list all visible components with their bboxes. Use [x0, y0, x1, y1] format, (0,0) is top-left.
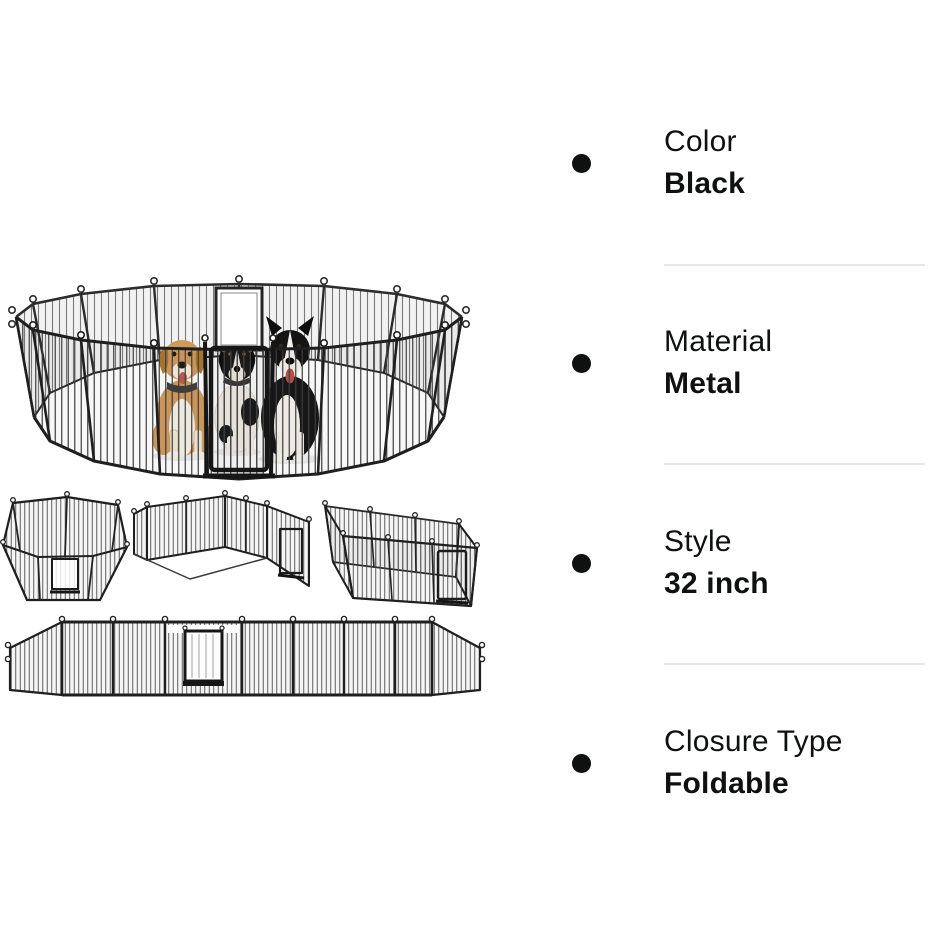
spec-row-closure-type: Closure Type Foldable	[572, 721, 843, 805]
spec-label-style: Style	[664, 521, 769, 563]
hexagon-pen	[1, 492, 130, 600]
pen-back-gate	[216, 288, 262, 350]
bullet-icon	[572, 154, 591, 173]
pen-front-gate	[202, 335, 276, 476]
spec-label-closure-type: Closure Type	[664, 721, 843, 763]
bullet-icon	[572, 354, 591, 373]
spec-label-material: Material	[664, 321, 772, 363]
product-image-main	[0, 240, 478, 485]
playpen-flat-illustration	[0, 613, 490, 705]
divider	[664, 264, 925, 266]
product-image-flat-panels	[0, 613, 490, 705]
playpen-configurations-illustration	[0, 489, 490, 611]
divider	[664, 463, 925, 465]
spec-value-style: 32 inch	[664, 563, 769, 605]
spec-row-style: Style 32 inch	[572, 521, 769, 605]
spec-value-color: Black	[664, 163, 745, 205]
bullet-icon	[572, 554, 591, 573]
spec-row-material: Material Metal	[572, 321, 772, 405]
rectangle-pen	[323, 501, 480, 606]
flat-panel-row	[5, 616, 484, 695]
spec-label-color: Color	[664, 121, 745, 163]
product-image-configurations	[0, 489, 490, 611]
spec-value-material: Metal	[664, 363, 772, 405]
divider	[664, 663, 925, 665]
playpen-circle-illustration	[0, 240, 478, 485]
bullet-icon	[572, 754, 591, 773]
spec-row-color: Color Black	[572, 121, 745, 205]
l-shape-pen	[132, 491, 312, 586]
spec-value-closure-type: Foldable	[664, 763, 843, 805]
